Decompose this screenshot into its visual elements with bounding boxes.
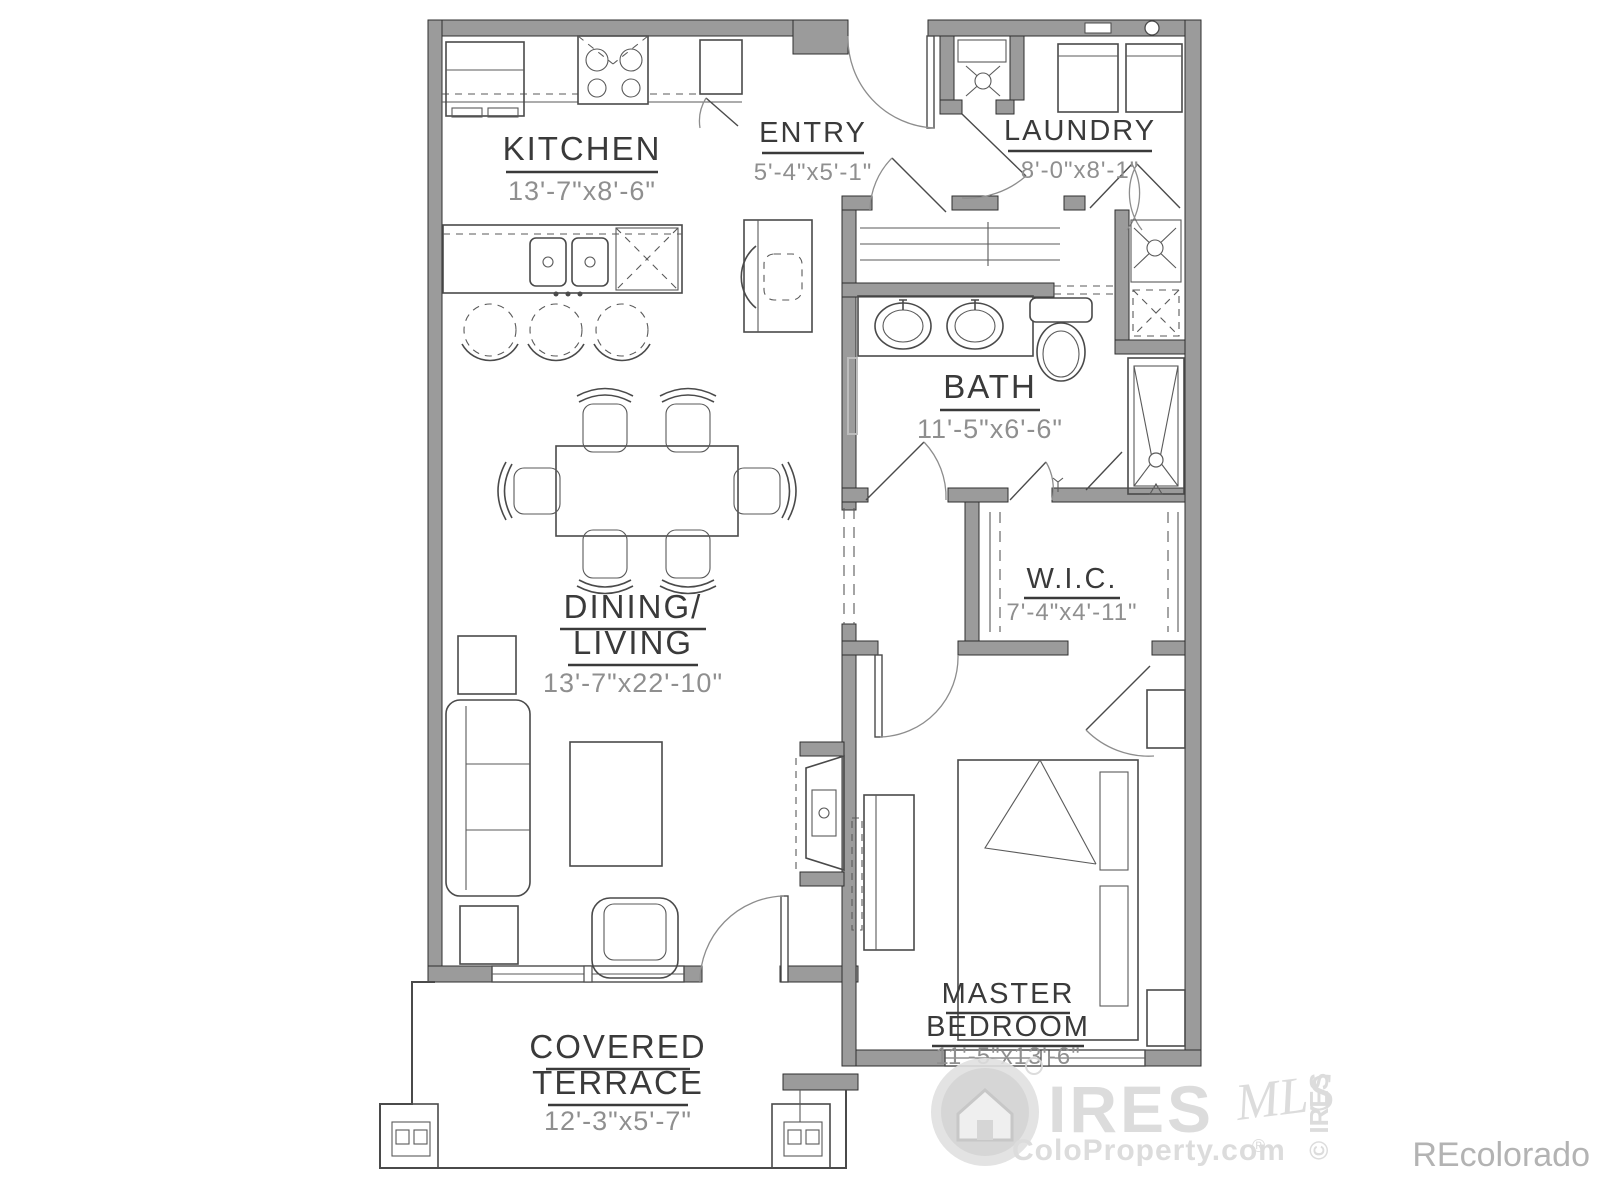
label-kitchen: KITCHEN 13'-7"x8'-6" — [503, 130, 662, 206]
bar-stools — [462, 304, 650, 361]
label-master: MASTER BEDROOM 11'-5"x13'-6" — [926, 978, 1090, 1070]
kitchen-name: KITCHEN — [503, 130, 662, 167]
entry-closet-shelving — [860, 222, 1060, 266]
master-name1: MASTER — [942, 978, 1075, 1010]
dining-chair — [660, 389, 716, 453]
floor-plan-page: KITCHEN 13'-7"x8'-6" ENTRY 5'-4"x5'-1" L… — [0, 0, 1600, 1200]
kitchen-island — [443, 225, 682, 297]
dryer — [1126, 44, 1182, 112]
wall-mech-bottom-r — [996, 100, 1014, 114]
kitchen-dim: 13'-7"x8'-6" — [508, 176, 656, 206]
terrace-dim: 12'-3"x5'-7" — [544, 1106, 692, 1136]
wic-name: W.I.C. — [1027, 563, 1118, 595]
bath-door — [866, 442, 946, 500]
living-name: LIVING — [573, 624, 693, 661]
refrigerator — [446, 42, 524, 117]
pillow — [1100, 886, 1128, 1006]
wall-bath-bottom-2 — [948, 488, 1008, 502]
fan-icon — [1147, 240, 1163, 256]
end-table — [460, 906, 518, 964]
mechanical-closet — [958, 40, 1006, 96]
laundry-name: LAUNDRY — [1004, 115, 1156, 147]
dining-chair — [577, 530, 633, 594]
coffee-table — [570, 742, 662, 866]
dining-chair — [660, 530, 716, 594]
copyright-ires: © IRES — [1304, 1073, 1334, 1160]
wall-hall-wic — [965, 502, 979, 641]
wall-utility-bottom — [1115, 340, 1185, 354]
wall-hall-bottom-1 — [842, 641, 878, 655]
sofa — [446, 700, 530, 896]
wall-mech-bottom-l — [940, 100, 962, 114]
shower — [1128, 358, 1184, 494]
island-cabinet — [616, 228, 678, 290]
wall-notch — [1085, 23, 1111, 33]
bar-stool — [596, 304, 648, 356]
dining-chair — [498, 462, 560, 520]
pantry-cabinet — [699, 40, 742, 128]
pillow — [1100, 772, 1128, 870]
registered-mark: ® — [1252, 1136, 1265, 1156]
water-heater — [1133, 290, 1179, 336]
wall-bottom-master-2 — [1145, 1050, 1201, 1066]
wall-bottom-living-1 — [428, 966, 492, 982]
vanity — [858, 296, 1033, 356]
dining-table-set — [498, 389, 796, 594]
wall-bottom-master-1 — [842, 1050, 945, 1066]
wall-bottom-living-2 — [684, 966, 702, 982]
wall-hall-bottom-3 — [1152, 641, 1185, 655]
master-bedroom-door — [875, 655, 958, 737]
nightstand — [1147, 690, 1185, 748]
wall-entry-mech — [940, 36, 954, 110]
wall-left — [428, 20, 442, 982]
coloproperty-watermark: ColoProperty.com — [1012, 1134, 1286, 1167]
entry-door — [848, 36, 934, 128]
wall-right — [1185, 20, 1201, 1066]
bath-name: BATH — [943, 368, 1037, 405]
wall-fireplace-bottom — [800, 872, 844, 886]
double-sink — [530, 238, 608, 297]
ceiling-fixture-icon — [966, 66, 1000, 96]
label-terrace: COVERED TERRACE 12'-3"x5'-7" — [529, 1028, 706, 1136]
label-bath: BATH 11'-5"x6'-6" — [917, 368, 1063, 444]
bar-stool — [464, 304, 516, 356]
washer — [1058, 44, 1118, 112]
wall-entry-jog — [793, 20, 848, 54]
built-in-desk — [741, 220, 812, 332]
nightstand — [1147, 990, 1185, 1046]
wall-hall-bottom-2 — [958, 641, 1068, 655]
window-living — [492, 966, 684, 982]
entry-name: ENTRY — [759, 117, 867, 149]
stove — [578, 36, 648, 104]
label-dining-living: DINING/ LIVING 13'-7"x22'-10" — [543, 588, 723, 698]
dining-chair — [734, 462, 796, 520]
label-entry: ENTRY 5'-4"x5'-1" — [754, 117, 873, 186]
wic-angled-door — [1086, 666, 1154, 756]
dining-name: DINING/ — [564, 588, 703, 625]
shelf — [958, 40, 1006, 62]
wall-laundry-doorjamb — [1064, 196, 1085, 210]
terrace-post — [380, 1104, 438, 1168]
drain — [1149, 453, 1163, 467]
wall-utility-left — [1115, 210, 1129, 344]
entry-dim: 5'-4"x5'-1" — [754, 159, 873, 186]
bed-fold — [985, 760, 1096, 864]
wall-vent — [1145, 21, 1159, 35]
laundry-dim: 8'-0"x8'-1" — [1021, 157, 1140, 184]
terrace-post — [772, 1090, 830, 1168]
terrace-name2: TERRACE — [532, 1064, 704, 1101]
bar-stool — [530, 304, 582, 356]
entry-closet-door — [870, 158, 946, 212]
wall-top-kitchen — [428, 20, 848, 36]
wall-bath-top — [842, 283, 1054, 297]
dining-table — [556, 446, 738, 536]
wall-terrace-step — [783, 1074, 858, 1090]
wall-fireplace-top — [800, 742, 844, 756]
terrace-name1: COVERED — [529, 1028, 706, 1065]
wall-bath-bottom-3 — [1052, 488, 1185, 502]
watermarks: IRES MLS ColoProperty.com ® © IRES REcol… — [931, 1058, 1590, 1174]
bath-dim: 11'-5"x6'-6" — [917, 414, 1063, 444]
fireplace — [796, 756, 844, 870]
end-table — [458, 636, 516, 694]
wic-dim: 7'-4"x4'-11" — [1006, 599, 1137, 626]
wall-top-right — [928, 20, 1201, 36]
shower-door — [1086, 452, 1122, 490]
label-wic: W.I.C. 7'-4"x4'-11" — [1006, 563, 1137, 626]
wall-bath-bottom-1 — [842, 488, 868, 502]
utility-closet — [1131, 220, 1181, 336]
desk-chair — [764, 254, 802, 300]
floor-plan-drawing: KITCHEN 13'-7"x8'-6" ENTRY 5'-4"x5'-1" L… — [0, 0, 1600, 1200]
dresser — [864, 795, 914, 950]
recolorado-watermark: REcolorado — [1412, 1136, 1590, 1174]
terrace-door — [700, 896, 788, 982]
dining-living-dim: 13'-7"x22'-10" — [543, 668, 723, 698]
wall-closet-top-l — [842, 196, 872, 210]
dining-chair — [577, 389, 633, 453]
toilet — [1030, 298, 1092, 381]
wall-mech-laundry — [1010, 36, 1024, 100]
master-name2: BEDROOM — [926, 1011, 1090, 1043]
label-laundry: LAUNDRY 8'-0"x8'-1" — [1004, 115, 1156, 184]
